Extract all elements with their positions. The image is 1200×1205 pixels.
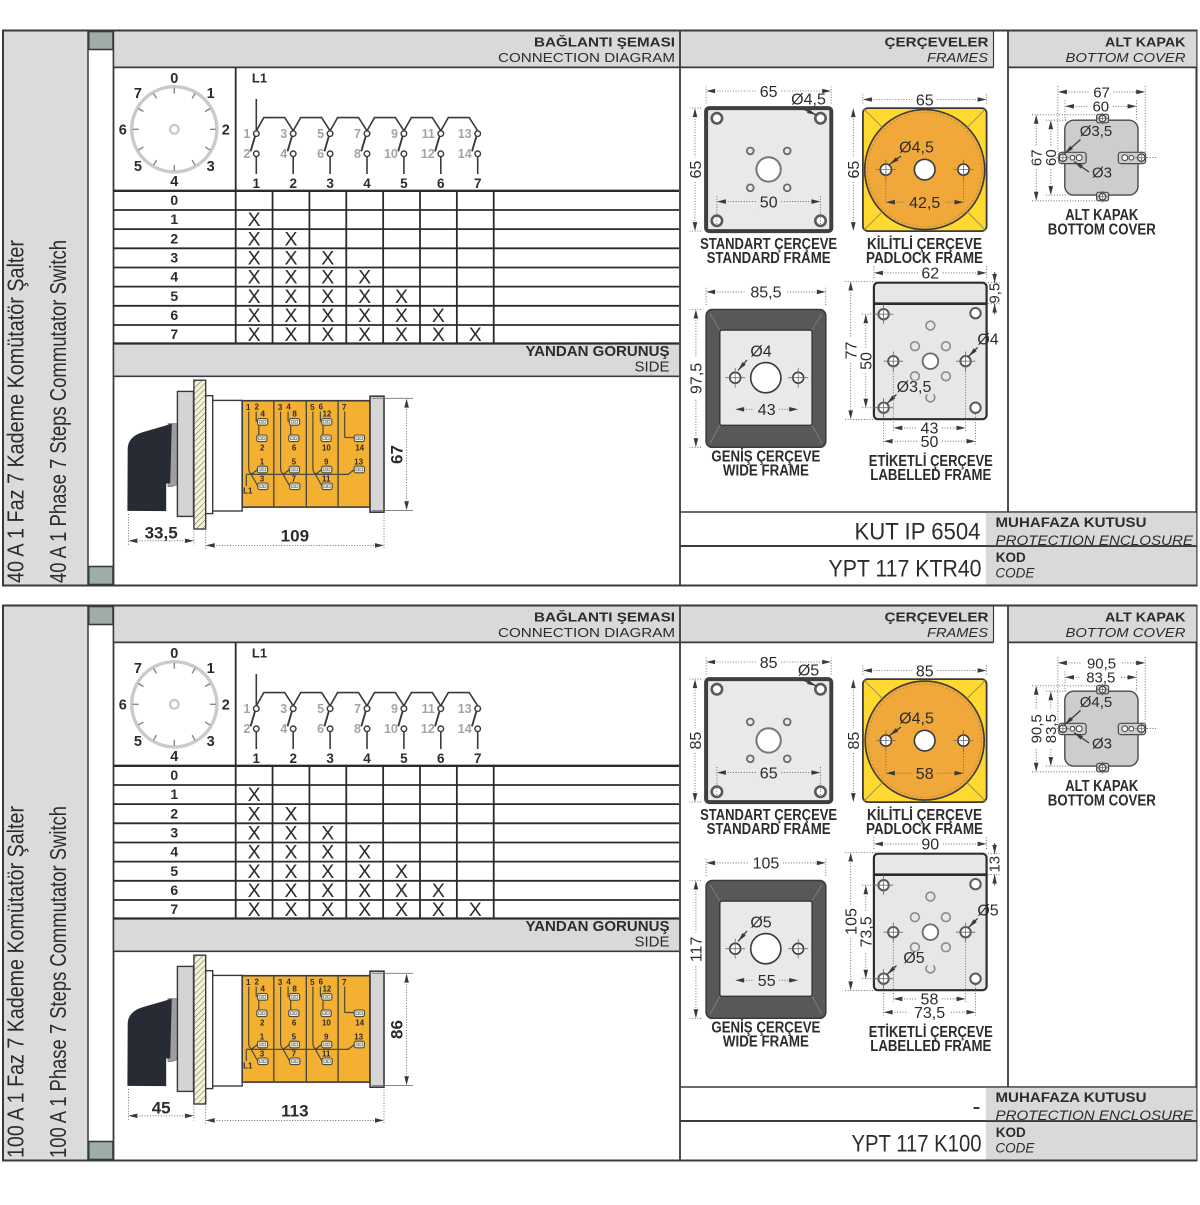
- svg-text:5: 5: [170, 863, 178, 879]
- svg-text:5: 5: [134, 159, 142, 175]
- svg-text:4: 4: [363, 176, 371, 191]
- svg-text:65: 65: [760, 84, 778, 101]
- svg-text:6: 6: [170, 307, 178, 323]
- svg-text:97,5: 97,5: [689, 363, 706, 394]
- svg-text:7: 7: [170, 326, 178, 342]
- svg-text:7: 7: [474, 751, 482, 766]
- svg-text:5: 5: [317, 127, 324, 141]
- svg-text:YANDAN GÖRÜNÜŞ: YANDAN GÖRÜNÜŞ: [526, 343, 670, 360]
- svg-text:60: 60: [1092, 99, 1109, 116]
- svg-text:3: 3: [170, 250, 178, 266]
- svg-text:1: 1: [170, 786, 178, 802]
- svg-text:1: 1: [207, 86, 215, 102]
- svg-text:5: 5: [170, 288, 178, 304]
- svg-text:CONNECTION DIAGRAM: CONNECTION DIAGRAM: [498, 50, 675, 65]
- svg-text:9: 9: [391, 127, 398, 141]
- svg-text:STANDARD FRAME: STANDARD FRAME: [707, 250, 831, 267]
- svg-text:7: 7: [342, 978, 347, 987]
- svg-text:12: 12: [421, 722, 435, 736]
- svg-text:50: 50: [921, 434, 939, 451]
- svg-text:BAĞLANTI ŞEMASI: BAĞLANTI ŞEMASI: [534, 35, 675, 50]
- svg-text:8: 8: [292, 410, 297, 419]
- svg-text:Ø3: Ø3: [1092, 165, 1112, 182]
- svg-text:PADLOCK FRAME: PADLOCK FRAME: [866, 250, 983, 267]
- svg-text:0: 0: [170, 71, 178, 87]
- svg-text:1: 1: [253, 176, 261, 191]
- svg-text:3: 3: [278, 403, 283, 412]
- svg-text:SIDE: SIDE: [634, 359, 669, 376]
- svg-text:85: 85: [916, 663, 934, 680]
- svg-text:83,5: 83,5: [1086, 670, 1115, 687]
- svg-text:13: 13: [987, 856, 1004, 873]
- svg-text:CODE: CODE: [995, 566, 1035, 581]
- svg-text:4: 4: [286, 403, 291, 412]
- svg-text:3: 3: [207, 159, 215, 175]
- svg-text:8: 8: [354, 722, 361, 736]
- svg-text:1: 1: [253, 751, 261, 766]
- svg-text:42,5: 42,5: [909, 195, 940, 212]
- svg-text:Ø4: Ø4: [750, 344, 771, 361]
- svg-text:9: 9: [391, 702, 398, 716]
- svg-text:WIDE FRAME: WIDE FRAME: [723, 463, 809, 480]
- svg-text:3: 3: [326, 751, 334, 766]
- svg-text:12: 12: [322, 410, 331, 419]
- svg-text:Ø5: Ø5: [903, 950, 924, 967]
- svg-text:14: 14: [458, 147, 472, 161]
- svg-text:13: 13: [458, 702, 472, 716]
- svg-text:BAĞLANTI ŞEMASI: BAĞLANTI ŞEMASI: [534, 610, 675, 625]
- svg-text:7: 7: [292, 1049, 297, 1058]
- svg-text:1: 1: [246, 978, 251, 987]
- svg-text:3: 3: [326, 176, 334, 191]
- svg-text:58: 58: [916, 766, 934, 783]
- svg-text:1: 1: [243, 127, 250, 141]
- svg-text:9,5: 9,5: [987, 283, 1004, 304]
- svg-text:1: 1: [260, 458, 265, 467]
- svg-text:6: 6: [119, 698, 127, 714]
- svg-text:109: 109: [281, 526, 309, 545]
- svg-text:62: 62: [921, 266, 939, 283]
- svg-text:6: 6: [317, 722, 324, 736]
- svg-text:YPT 117 K100: YPT 117 K100: [852, 1131, 982, 1158]
- svg-text:Ø3,5: Ø3,5: [1080, 123, 1113, 140]
- svg-text:PROTECTION ENCLOSURE: PROTECTION ENCLOSURE: [996, 1108, 1195, 1123]
- svg-text:2: 2: [170, 230, 178, 246]
- svg-text:4: 4: [170, 269, 178, 285]
- svg-text:3: 3: [260, 474, 265, 483]
- svg-text:4: 4: [170, 844, 178, 860]
- svg-text:Ø4,5: Ø4,5: [899, 140, 934, 157]
- svg-text:7: 7: [342, 403, 347, 412]
- svg-text:65: 65: [916, 92, 934, 109]
- svg-text:MUHAFAZA KUTUSU: MUHAFAZA KUTUSU: [996, 515, 1147, 530]
- svg-text:ALT KAPAK: ALT KAPAK: [1105, 610, 1186, 625]
- svg-text:10: 10: [384, 147, 398, 161]
- svg-text:14: 14: [355, 443, 364, 452]
- svg-text:2: 2: [289, 176, 297, 191]
- svg-text:9: 9: [324, 1033, 329, 1042]
- svg-text:4: 4: [260, 410, 265, 419]
- svg-text:6: 6: [292, 1018, 297, 1027]
- svg-text:33,5: 33,5: [145, 523, 178, 542]
- svg-text:2: 2: [170, 805, 178, 821]
- svg-text:85,5: 85,5: [750, 285, 781, 302]
- svg-text:7: 7: [474, 176, 482, 191]
- svg-text:4: 4: [170, 749, 178, 765]
- svg-text:8: 8: [292, 985, 297, 994]
- svg-text:40 A 1 Phase 7 Steps Commutato: 40 A 1 Phase 7 Steps Commutator Switch: [45, 240, 71, 583]
- svg-text:2: 2: [243, 722, 250, 736]
- svg-text:Ø3: Ø3: [1092, 736, 1112, 753]
- svg-text:12: 12: [322, 985, 331, 994]
- svg-text:FRAMES: FRAMES: [927, 625, 988, 640]
- svg-text:2: 2: [289, 751, 297, 766]
- svg-text:100 A 1 Phase 7 Steps Commutat: 100 A 1 Phase 7 Steps Commutator Switch: [45, 806, 71, 1158]
- svg-text:7: 7: [134, 661, 142, 677]
- svg-text:11: 11: [322, 1049, 331, 1058]
- svg-text:BOTTOM COVER: BOTTOM COVER: [1066, 50, 1187, 65]
- svg-text:3: 3: [278, 978, 283, 987]
- svg-text:L1: L1: [243, 1062, 253, 1071]
- svg-text:0: 0: [170, 767, 178, 783]
- svg-text:50: 50: [760, 194, 778, 211]
- svg-text:L1: L1: [252, 646, 267, 661]
- svg-text:14: 14: [355, 1018, 364, 1027]
- svg-text:3: 3: [207, 734, 215, 750]
- svg-text:67: 67: [387, 445, 406, 464]
- svg-text:6: 6: [317, 147, 324, 161]
- svg-text:0: 0: [170, 646, 178, 662]
- svg-text:113: 113: [281, 1101, 308, 1120]
- svg-text:14: 14: [458, 722, 472, 736]
- svg-text:4: 4: [170, 174, 178, 190]
- svg-text:2: 2: [243, 147, 250, 161]
- svg-text:5: 5: [310, 403, 315, 412]
- svg-text:6: 6: [170, 882, 178, 898]
- svg-text:2: 2: [222, 698, 230, 714]
- svg-text:60: 60: [1043, 149, 1060, 166]
- svg-text:86: 86: [387, 1020, 406, 1039]
- svg-text:CODE: CODE: [995, 1141, 1035, 1156]
- svg-text:7: 7: [354, 702, 361, 716]
- svg-text:85: 85: [760, 655, 778, 672]
- svg-text:50: 50: [859, 352, 876, 370]
- svg-text:KUT IP 6504: KUT IP 6504: [855, 519, 981, 546]
- svg-text:1: 1: [246, 403, 251, 412]
- svg-text:BOTTOM COVER: BOTTOM COVER: [1048, 792, 1156, 809]
- svg-text:ÇERÇEVELER: ÇERÇEVELER: [885, 35, 990, 50]
- svg-text:STANDARD FRAME: STANDARD FRAME: [707, 821, 831, 838]
- svg-text:BOTTOM COVER: BOTTOM COVER: [1048, 221, 1156, 238]
- svg-text:2: 2: [254, 403, 259, 412]
- svg-text:CONNECTION DIAGRAM: CONNECTION DIAGRAM: [498, 625, 675, 640]
- svg-text:3: 3: [280, 127, 287, 141]
- svg-text:4: 4: [260, 985, 265, 994]
- svg-text:Ø4,5: Ø4,5: [791, 92, 826, 109]
- svg-text:4: 4: [363, 751, 371, 766]
- svg-text:10: 10: [322, 1018, 331, 1027]
- svg-text:ALT KAPAK: ALT KAPAK: [1105, 35, 1186, 50]
- svg-text:KOD: KOD: [996, 550, 1026, 565]
- svg-text:1: 1: [207, 661, 215, 677]
- svg-text:WIDE FRAME: WIDE FRAME: [723, 1034, 809, 1051]
- svg-text:2: 2: [260, 443, 265, 452]
- svg-text:PADLOCK FRAME: PADLOCK FRAME: [866, 821, 983, 838]
- svg-text:10: 10: [322, 443, 331, 452]
- svg-text:55: 55: [758, 973, 776, 990]
- svg-text:1: 1: [260, 1033, 265, 1042]
- svg-text:L1: L1: [243, 487, 253, 496]
- svg-text:1: 1: [170, 211, 178, 227]
- svg-text:65: 65: [688, 161, 705, 179]
- svg-text:3: 3: [260, 1049, 265, 1058]
- svg-text:FRAMES: FRAMES: [927, 50, 988, 65]
- svg-text:6: 6: [437, 751, 445, 766]
- svg-text:7: 7: [170, 901, 178, 917]
- svg-text:5: 5: [134, 734, 142, 750]
- svg-text:73,5: 73,5: [914, 1005, 945, 1022]
- svg-text:6: 6: [437, 176, 445, 191]
- svg-text:11: 11: [422, 127, 435, 141]
- svg-text:40 A 1 Faz 7 Kademe Komütatör: 40 A 1 Faz 7 Kademe Komütatör Şalter: [3, 240, 29, 583]
- svg-text:L1: L1: [252, 71, 267, 86]
- svg-text:KOD: KOD: [996, 1125, 1026, 1140]
- svg-text:11: 11: [322, 474, 331, 483]
- svg-text:BOTTOM COVER: BOTTOM COVER: [1066, 625, 1187, 640]
- svg-text:LABELLED FRAME: LABELLED FRAME: [870, 467, 991, 484]
- svg-text:Ø4,5: Ø4,5: [1080, 694, 1113, 711]
- svg-text:12: 12: [421, 147, 435, 161]
- svg-text:Ø5: Ø5: [977, 902, 998, 919]
- svg-text:83,5: 83,5: [1043, 714, 1060, 743]
- svg-text:90: 90: [921, 837, 939, 854]
- svg-text:65: 65: [846, 161, 863, 179]
- svg-text:8: 8: [354, 147, 361, 161]
- svg-text:10: 10: [384, 722, 398, 736]
- svg-text:3: 3: [170, 825, 178, 841]
- svg-text:Ø4: Ø4: [977, 331, 998, 348]
- svg-text:2: 2: [222, 123, 230, 139]
- svg-text:YPT 117 KTR40: YPT 117 KTR40: [829, 556, 982, 583]
- svg-text:5: 5: [310, 978, 315, 987]
- svg-text:ÇERÇEVELER: ÇERÇEVELER: [885, 610, 990, 625]
- svg-text:11: 11: [422, 702, 435, 716]
- svg-text:2: 2: [254, 978, 259, 987]
- svg-text:85: 85: [846, 732, 863, 750]
- svg-text:73,5: 73,5: [859, 916, 876, 947]
- svg-text:43: 43: [758, 402, 776, 419]
- svg-text:105: 105: [753, 856, 780, 873]
- svg-text:-: -: [973, 1094, 981, 1121]
- svg-text:MUHAFAZA KUTUSU: MUHAFAZA KUTUSU: [996, 1090, 1147, 1105]
- svg-text:5: 5: [317, 702, 324, 716]
- svg-text:5: 5: [400, 751, 408, 766]
- svg-text:85: 85: [688, 732, 705, 750]
- svg-text:117: 117: [689, 937, 706, 963]
- svg-text:Ø5: Ø5: [750, 915, 771, 932]
- svg-text:2: 2: [260, 1018, 265, 1027]
- svg-text:LABELLED FRAME: LABELLED FRAME: [870, 1038, 991, 1055]
- svg-text:13: 13: [354, 458, 363, 467]
- svg-text:6: 6: [119, 123, 127, 139]
- svg-text:6: 6: [292, 443, 297, 452]
- svg-text:13: 13: [354, 1033, 363, 1042]
- svg-text:13: 13: [458, 127, 472, 141]
- svg-text:YANDAN GÖRÜNÜŞ: YANDAN GÖRÜNÜŞ: [526, 918, 670, 935]
- svg-text:65: 65: [760, 765, 778, 782]
- svg-text:5: 5: [400, 176, 408, 191]
- svg-text:4: 4: [286, 978, 291, 987]
- svg-text:4: 4: [280, 722, 287, 736]
- svg-text:45: 45: [152, 1098, 171, 1117]
- svg-text:5: 5: [292, 1033, 297, 1042]
- svg-text:SIDE: SIDE: [634, 934, 669, 951]
- svg-text:3: 3: [280, 702, 287, 716]
- svg-text:9: 9: [324, 458, 329, 467]
- svg-text:4: 4: [280, 147, 287, 161]
- svg-text:0: 0: [170, 192, 178, 208]
- svg-text:Ø5: Ø5: [798, 663, 819, 680]
- svg-text:Ø3,5: Ø3,5: [897, 379, 932, 396]
- svg-text:PROTECTION ENCLOSURE: PROTECTION ENCLOSURE: [996, 533, 1195, 548]
- svg-text:7: 7: [134, 86, 142, 102]
- svg-text:100 A 1 Faz 7 Kademe Komütatör: 100 A 1 Faz 7 Kademe Komütatör Şalter: [3, 806, 29, 1158]
- svg-text:7: 7: [354, 127, 361, 141]
- svg-text:Ø4,5: Ø4,5: [899, 711, 934, 728]
- svg-text:1: 1: [243, 702, 250, 716]
- svg-text:7: 7: [292, 474, 297, 483]
- svg-text:5: 5: [292, 458, 297, 467]
